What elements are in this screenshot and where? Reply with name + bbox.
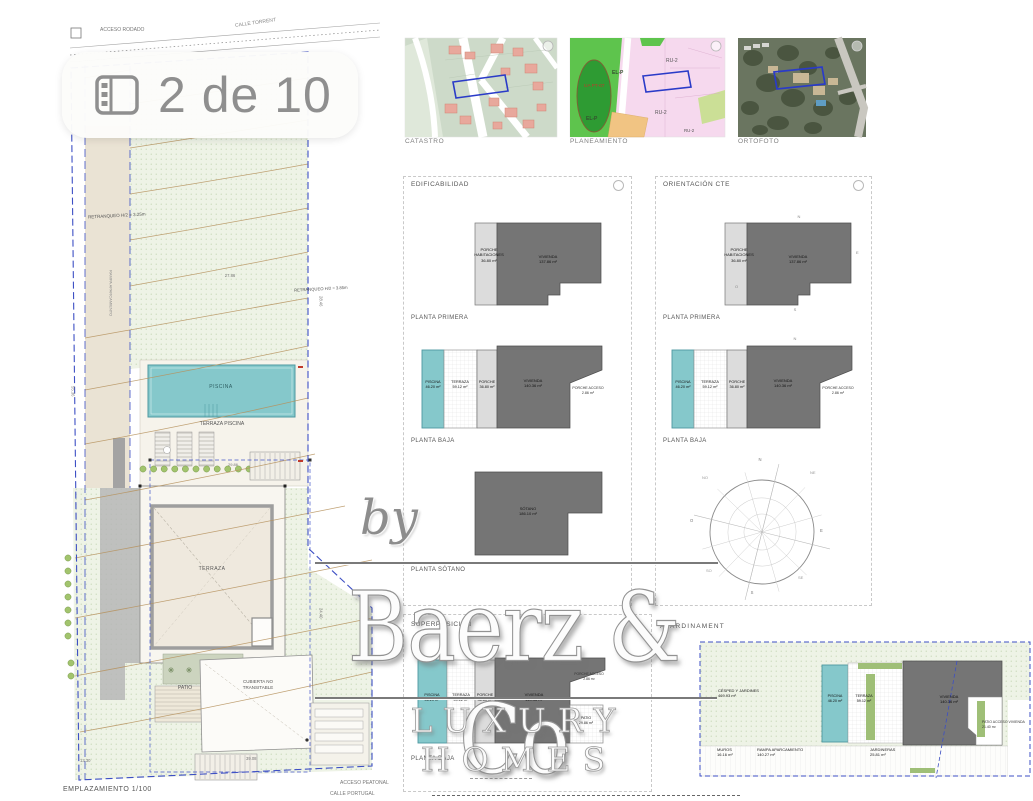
map-catastro bbox=[405, 38, 557, 137]
map-caption-catastro: CATASTRO bbox=[405, 138, 444, 147]
sun-lounger bbox=[177, 432, 192, 466]
superposicion-title: SUPERPOSICIÓN bbox=[411, 621, 472, 630]
compass-label: S bbox=[751, 590, 754, 596]
map-corner-icon bbox=[711, 41, 721, 51]
area-label: VIVIENDA 137.86 m² bbox=[539, 254, 558, 265]
zone-label: UA PT-07 bbox=[584, 84, 605, 90]
compass-label: NE bbox=[810, 470, 816, 475]
area-label: VIVIENDA 137.86 m² bbox=[789, 254, 808, 265]
area-label: PORCHE 36.80 m² bbox=[479, 380, 495, 390]
orientation-letter: O bbox=[735, 284, 738, 289]
pool-label: PISCINA bbox=[209, 384, 233, 391]
panel-superposicion bbox=[403, 614, 652, 792]
area-label: SÓTANO 186.10 m² bbox=[519, 506, 537, 517]
ajardinament-plan bbox=[700, 642, 1030, 778]
area-label: PORCHE HABITACIONES 36.80 m² bbox=[474, 247, 504, 263]
edificabilidad-title: EDIFICABILIDAD bbox=[411, 181, 469, 190]
orientation-letter: E bbox=[856, 250, 859, 255]
floor-label: PLANTA PRIMERA bbox=[663, 314, 720, 322]
floor-label: PLANTA BAJA bbox=[411, 755, 455, 763]
area-label: PORCHE 36.80 m² bbox=[729, 380, 745, 390]
site-caption: EMPLAZAMIENTO 1/100 bbox=[63, 785, 152, 794]
level-mark bbox=[298, 366, 303, 368]
compass-label: O bbox=[690, 518, 693, 524]
gallery-counter-text: 2 de 10 bbox=[158, 66, 332, 124]
orientation-letter: N bbox=[794, 336, 797, 341]
level-mark bbox=[298, 460, 303, 462]
terrace-label: TERRAZA bbox=[199, 566, 226, 573]
area-label: TERRAZA 59.12 m² bbox=[452, 693, 470, 703]
map-corner-icon bbox=[543, 41, 553, 51]
compass-label: NO bbox=[702, 475, 708, 480]
panel-corner-icon bbox=[613, 180, 624, 191]
area-label: PATIO ACCESO VIVIENDA 21.40 m² bbox=[982, 720, 1025, 729]
area-label: TERRAZA 59.12 m² bbox=[701, 380, 719, 390]
orientation-letter: N bbox=[798, 214, 801, 219]
acceso-peatonal-label: ACCESO PEATONAL bbox=[340, 780, 389, 787]
pool-terrace-label: TERRAZA PISCINA bbox=[200, 421, 244, 428]
area-label: CÉSPED Y JARDINES 469.93 m² bbox=[718, 688, 759, 699]
area-label: PISCINA 46.20 m² bbox=[828, 694, 843, 704]
zone-label: EL-P bbox=[612, 70, 623, 77]
acceso-rodado-label: ACCESO RODADO bbox=[100, 27, 144, 34]
dimension: 13.30 bbox=[80, 758, 90, 764]
area-label: PATIO 29.86 m² bbox=[579, 716, 593, 726]
map-corner-icon bbox=[852, 41, 862, 51]
area-label: PISCINA 46.20 m² bbox=[675, 380, 690, 390]
compass-label: E bbox=[820, 528, 823, 534]
side-table bbox=[164, 447, 171, 454]
area-label: VIVIENDA 140.36 m² bbox=[774, 378, 793, 389]
area-label: VIVIENDA 140.36 m² bbox=[940, 694, 959, 705]
dimension: 55.36 bbox=[70, 386, 76, 396]
map-ortofoto bbox=[738, 38, 866, 137]
gallery-icon bbox=[94, 74, 140, 116]
panel-corner-icon bbox=[853, 180, 864, 191]
area-label: PISCINA 46.20 m² bbox=[424, 693, 439, 703]
dimension: 29.86 bbox=[228, 462, 238, 467]
area-label: MUROS 16.16 m² bbox=[717, 747, 733, 758]
area-label: PORCHE ACCESO 2.86 m² bbox=[822, 386, 853, 396]
orientation-letter: S bbox=[794, 307, 797, 312]
ramp-note: RAMPA APARCAMIENTO bbox=[108, 270, 113, 316]
map-caption-planeamiento: PLANEAMIENTO bbox=[570, 138, 628, 147]
zone-label: RU-2 bbox=[655, 110, 667, 117]
pool bbox=[148, 365, 295, 417]
roof-label: CUBIERTA NO TRANSITABLE bbox=[243, 679, 273, 691]
area-label: TERRAZA 59.12 m² bbox=[451, 380, 469, 390]
dimension: 39.08 bbox=[246, 756, 256, 762]
ajardinament-title: AJARDINAMENT bbox=[660, 623, 725, 632]
street-dashed-line bbox=[432, 795, 740, 796]
area-label: VIVIENDA 140.36 m² bbox=[524, 378, 543, 389]
north-box bbox=[71, 28, 81, 38]
compass-label: SE bbox=[798, 575, 803, 580]
area-label: PISCINA 46.20 m² bbox=[425, 380, 440, 390]
floor-label: PLANTA BAJA bbox=[663, 437, 707, 445]
area-label: JARDINERAS 25.81 m² bbox=[870, 747, 895, 758]
zone-label: EL-P bbox=[586, 116, 597, 123]
map-caption-ortofoto: ORTOFOTO bbox=[738, 138, 779, 147]
area-label: PORCHE ACCESO 2.86 m² bbox=[574, 672, 604, 681]
dimension: 24.40 bbox=[318, 608, 324, 618]
area-label: VIVIENDA 140.36 m² bbox=[525, 692, 544, 703]
compass-label: SO bbox=[706, 568, 712, 573]
area-label: PORCHE HABITACIONES 36.80 m² bbox=[724, 247, 754, 263]
compass-label: N bbox=[758, 457, 761, 463]
area-label: RAMPA APARCAMIENTO 140.27 m² bbox=[757, 747, 803, 758]
gallery-counter-badge[interactable]: 2 de 10 bbox=[62, 52, 358, 138]
dimension: 27.86 bbox=[225, 273, 235, 279]
plan-sheet: ACCESO RODADO CALLE TORRENT RETRANQUEO H… bbox=[0, 0, 1033, 801]
street-name-bottom: CALLE PORTUGAL bbox=[330, 791, 375, 798]
sun-lounger bbox=[199, 432, 214, 466]
floor-label: PLANTA SÓTANO bbox=[411, 566, 465, 574]
floor-label: PLANTA PRIMERA bbox=[411, 314, 468, 322]
dimension: 28.46 bbox=[318, 296, 324, 306]
neighbour-pool bbox=[816, 100, 826, 106]
area-label: PORCHE 36.80 m² bbox=[477, 693, 493, 703]
floor-label: PLANTA BAJA bbox=[411, 437, 455, 445]
zone-label: RU-2 bbox=[666, 58, 678, 65]
zone-label: RU-2 bbox=[684, 128, 694, 134]
area-label: PORCHE ACCESO 2.86 m² bbox=[572, 386, 603, 396]
street-dashed-line bbox=[470, 778, 532, 779]
area-label: TERRAZA 59.12 m² bbox=[855, 694, 872, 704]
patio-label: PATIO bbox=[178, 685, 192, 692]
orientacion-title: ORIENTACIÓN CTE bbox=[663, 181, 730, 190]
